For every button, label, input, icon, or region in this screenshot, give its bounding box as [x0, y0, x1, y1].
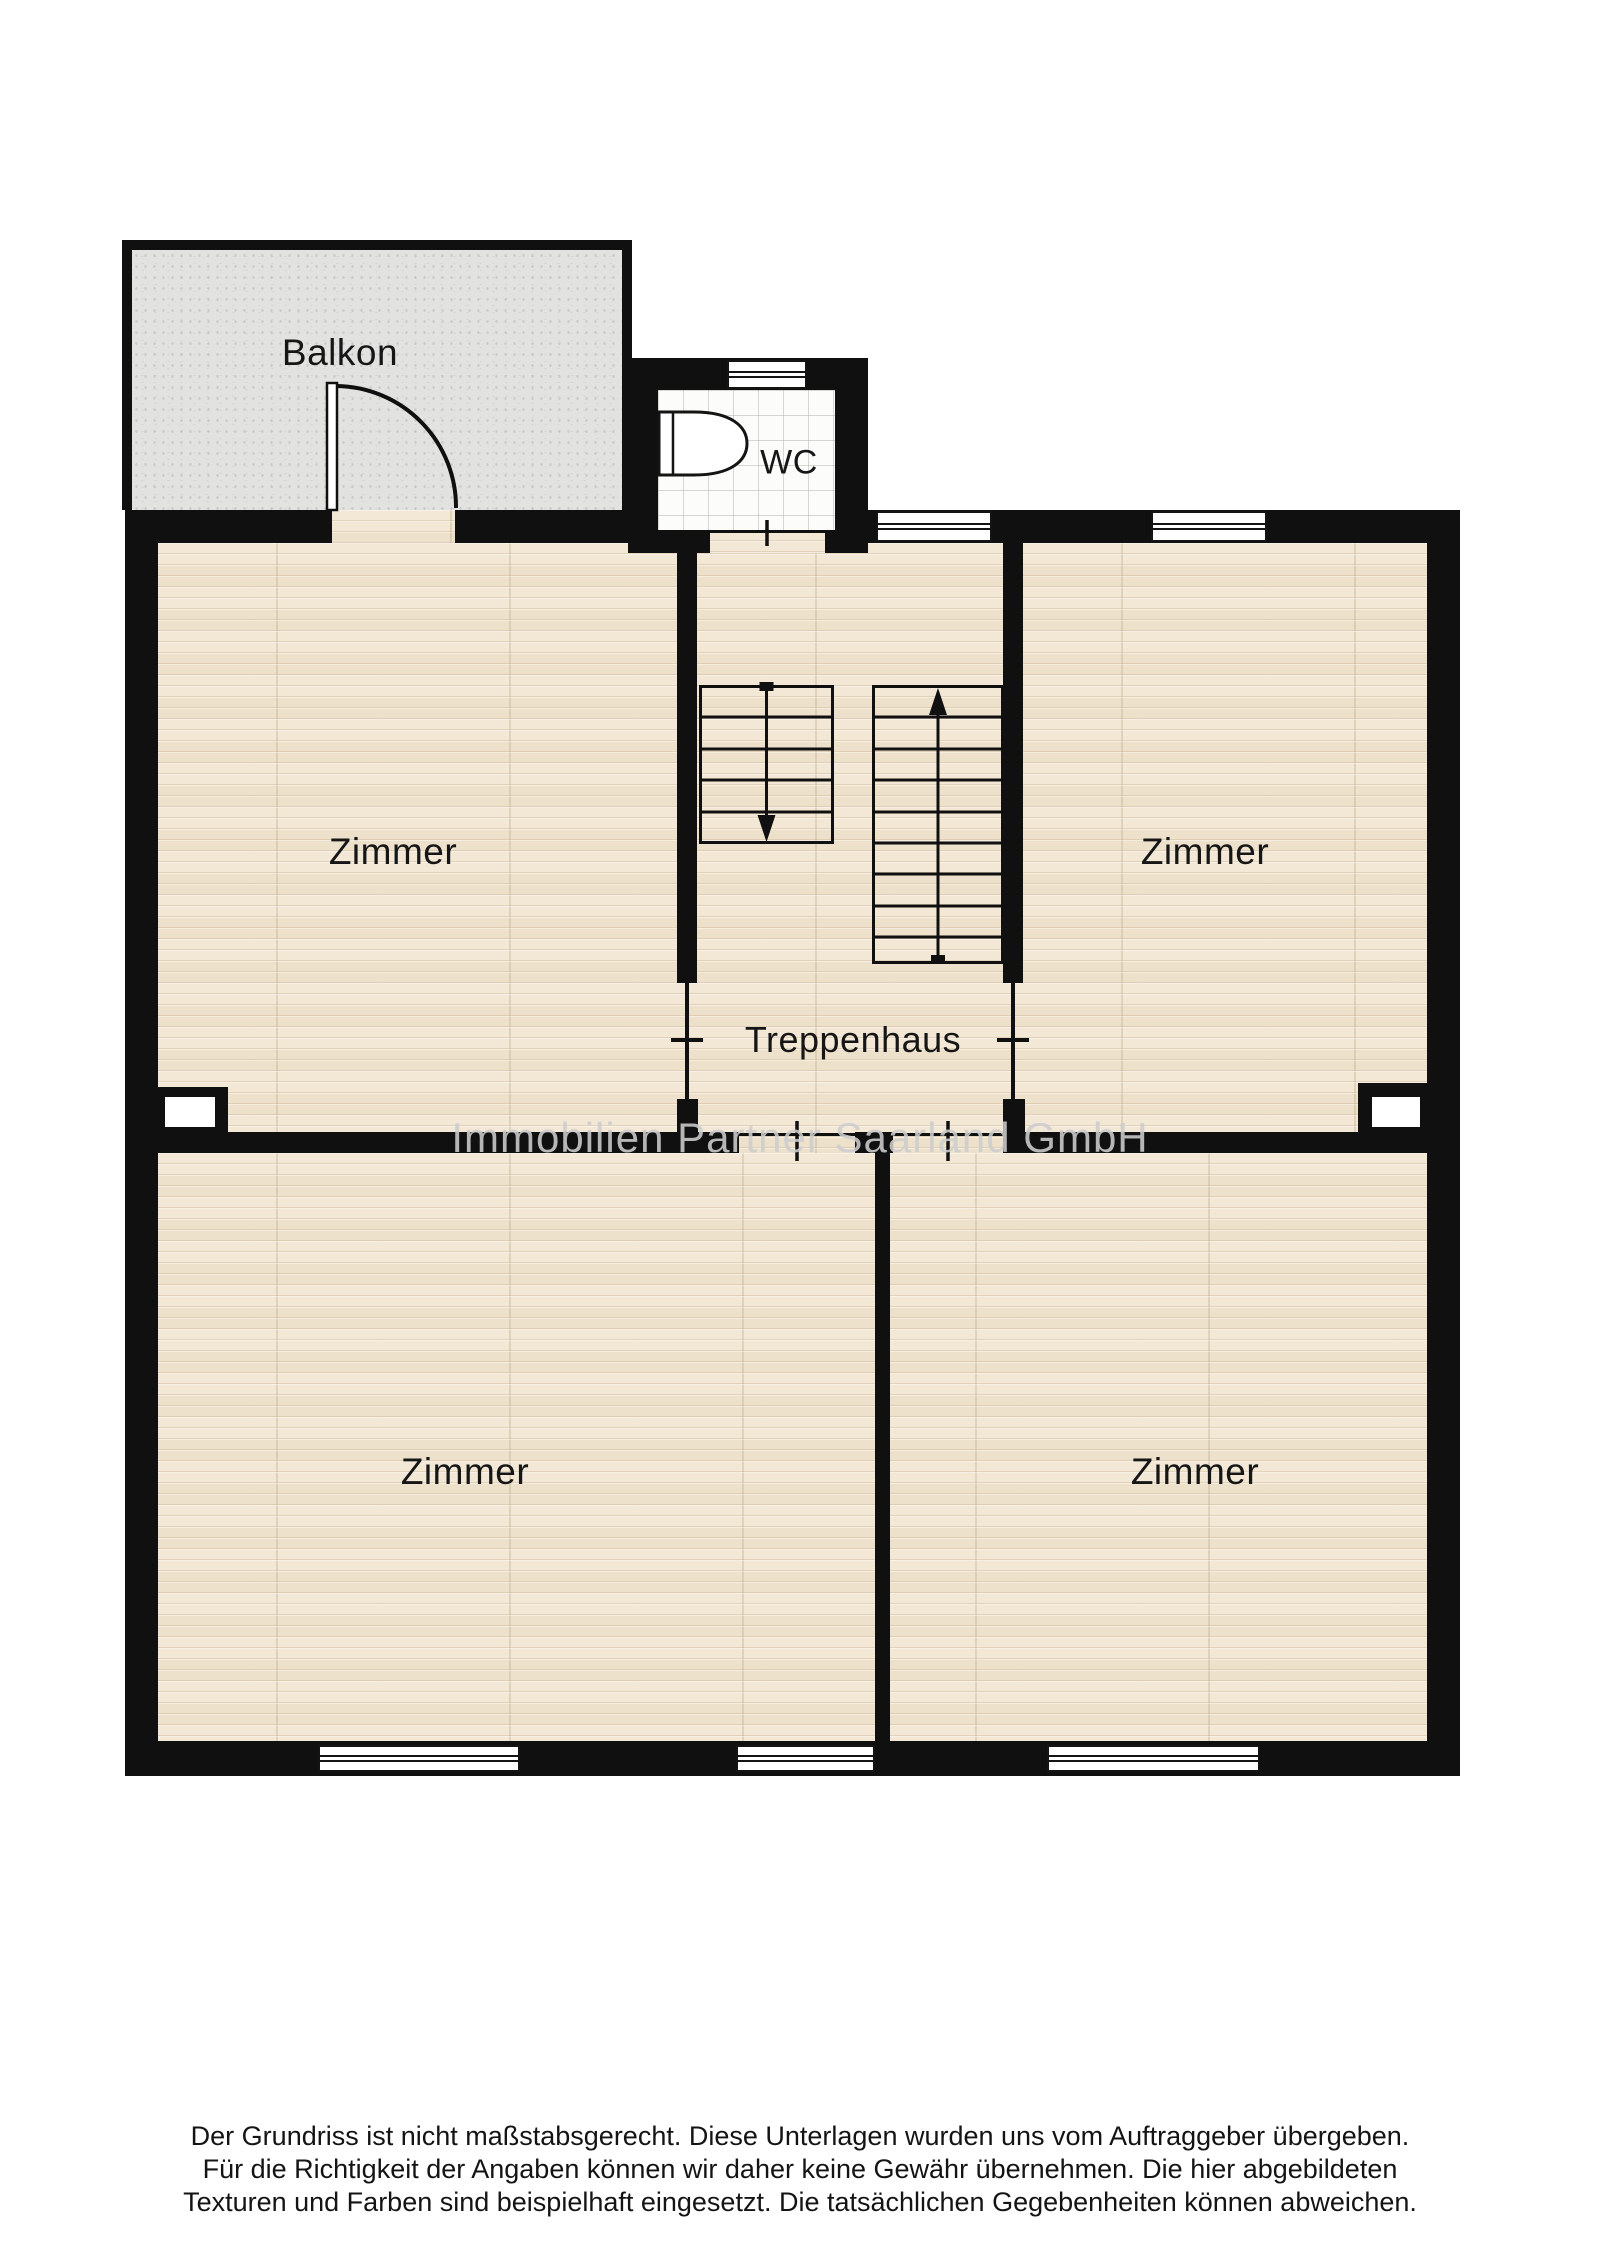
- balcony-wall-top: [122, 240, 632, 250]
- treppenhaus-wall-left: [677, 543, 697, 983]
- disclaimer-line-2: Für die Richtigkeit der Angaben können w…: [0, 2153, 1600, 2186]
- balcony-floor: [132, 250, 622, 510]
- room-label-treppenhaus: Treppenhaus: [745, 1019, 961, 1061]
- room-label-zimmer-bottom-left: Zimmer: [401, 1451, 529, 1493]
- bottom-rooms-divider-wall: [875, 1153, 890, 1741]
- disclaimer-line-1: Der Grundriss ist nicht maßstabsgerecht.…: [0, 2120, 1600, 2153]
- disclaimer-line-3: Texturen und Farben sind beispielhaft ei…: [0, 2186, 1600, 2219]
- room-label-zimmer-top-left: Zimmer: [329, 831, 457, 873]
- room-label-balkon: Balkon: [282, 332, 398, 374]
- exterior-wall-top-left-b: [455, 510, 628, 543]
- disclaimer-text: Der Grundriss ist nicht maßstabsgerecht.…: [0, 2120, 1600, 2219]
- watermark-text: Immobilien Partner Saarland GmbH: [451, 1114, 1148, 1162]
- floor-plan: Balkon WC Zimmer Zimmer Treppenhaus Zimm…: [0, 0, 1600, 2264]
- window-top-1: [876, 511, 992, 542]
- balcony-wall-left: [122, 250, 132, 510]
- room-label-wc: WC: [760, 444, 818, 483]
- window-bottom-left: [318, 1745, 520, 1772]
- floor-treppenhaus: [697, 543, 1003, 1153]
- window-wc: [727, 360, 807, 389]
- wall-niche-right-opening: [1372, 1097, 1420, 1127]
- window-bottom-middle: [736, 1745, 875, 1772]
- floor-zimmer-bottom: [158, 1153, 1427, 1741]
- exterior-wall-right: [1427, 510, 1460, 1776]
- wall-niche-left-opening: [165, 1097, 215, 1127]
- room-label-zimmer-bottom-right: Zimmer: [1131, 1451, 1259, 1493]
- room-label-zimmer-top-right: Zimmer: [1141, 831, 1269, 873]
- wc-door-threshold-floor: [710, 530, 825, 553]
- treppenhaus-wall-right: [1003, 543, 1023, 983]
- exterior-wall-left: [125, 510, 158, 1776]
- window-bottom-right: [1047, 1745, 1260, 1772]
- window-top-2: [1151, 511, 1267, 542]
- balcony-door-threshold-floor: [332, 510, 455, 543]
